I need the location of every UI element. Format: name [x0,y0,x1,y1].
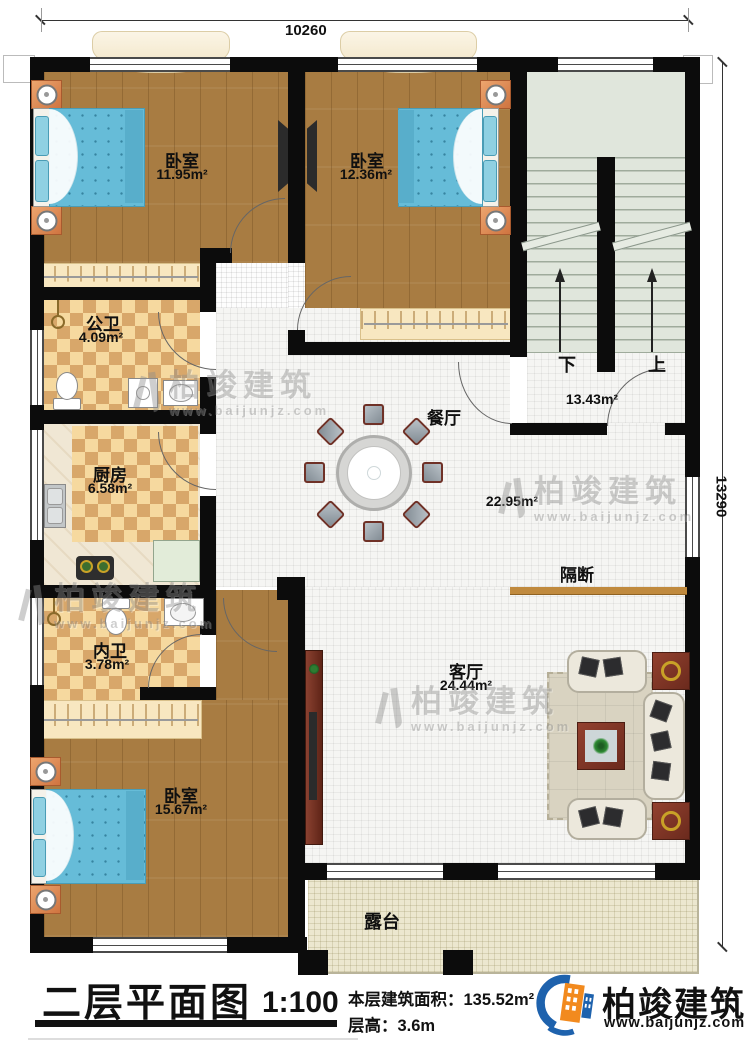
room-area: 11.95m² [156,166,207,182]
right-dimension-label: 13290 [712,476,729,518]
floor-area-label: 本层建筑面积： [348,991,464,1009]
wall-segment [305,863,327,880]
wall-segment [30,937,93,953]
partition-bar [510,587,687,595]
stair-arrow-head [555,268,565,282]
sliding-door [498,863,655,880]
pillow [483,160,497,202]
floor-area-info: 本层建筑面积：135.52m² [348,986,534,1010]
wall-segment [510,57,527,357]
room-area: 24.44m² [440,677,492,693]
stair-arrow [559,282,561,352]
wall-segment [288,57,305,263]
plant [309,664,319,674]
company-url: www.baijunjz.com [604,1015,745,1031]
pillow [483,116,497,156]
nightstand [31,80,62,109]
window [93,937,227,953]
chair [422,462,443,483]
stair-arrow-head [647,268,657,282]
wall-segment [288,342,527,355]
room-area: 3.78m² [85,656,129,672]
gold-ring [661,811,681,831]
sofa-cushion [578,656,599,677]
window [30,430,44,540]
wardrobe [40,700,202,739]
floor-area-value: 135.52m² [464,991,535,1009]
pillow [35,160,49,202]
stove-burner [97,560,110,573]
tv-panel [309,712,317,800]
floor-drain [47,612,61,626]
wall-segment [655,863,700,880]
nightstand [30,757,61,786]
stair-treads [615,157,685,353]
lamp-symbol [485,210,506,231]
extension-line [41,8,42,32]
room-area: 4.09m² [79,329,123,345]
nightstand [30,885,61,914]
tv-panel [278,120,288,192]
window [30,330,44,405]
washing-machine-door [136,386,150,400]
wall-segment [227,937,307,953]
room-area: 12.36m² [340,166,392,182]
room-area: 15.67m² [155,801,207,817]
chair [363,521,384,542]
lamp-symbol [485,84,506,105]
stove-burner [80,560,93,573]
sink-bowl [47,488,63,505]
tv-panel [307,120,317,192]
wall-segment [443,863,498,880]
table-center [367,466,381,480]
window [30,598,44,685]
stairs-down-label: 下 [558,351,576,377]
stair-mid-wall [597,157,615,372]
wall-segment [200,687,216,700]
side-table [652,652,690,690]
plant [593,738,609,754]
wall-segment [665,423,685,435]
window [338,57,477,72]
nightstand [480,206,511,235]
room-area: 6.58m² [88,480,132,496]
pillow [35,116,49,156]
chair [363,404,384,425]
window [685,477,700,557]
terrace-label: 露台 [364,908,400,934]
sink-basin [169,384,193,402]
wall-segment [200,377,216,434]
top-dimension-label: 10260 [285,22,327,39]
drain-hose [53,598,55,613]
lamp-symbol [35,889,56,910]
sink-basin [170,603,196,622]
floor-height-label: 层高： [348,1017,398,1035]
extension-line [688,8,689,32]
bed-fold [398,110,414,203]
window [327,863,443,880]
lamp-symbol [35,761,56,782]
chair [304,462,325,483]
wall-segment [200,248,216,312]
sofa-cushion [650,730,671,751]
nightstand [31,206,62,235]
wall-segment [510,423,607,435]
floor-plan-page: 10260 13290 [0,0,750,1046]
stairs-area: 13.43m² [566,391,618,407]
stair-arrow [651,282,653,352]
wall-segment [30,287,216,300]
title-underline [35,1020,337,1027]
stair-treads [527,157,597,353]
partition-label: 隔断 [560,561,594,586]
sofa-cushion [603,807,624,828]
stairs-up-label: 上 [648,351,666,377]
top-dimension-line [40,20,690,21]
wall-segment [685,57,700,477]
floor-height-info: 层高：3.6m [348,1012,435,1036]
wardrobe [360,308,512,340]
sink-bowl [47,507,63,524]
terrace-pillar [443,950,473,975]
gold-ring [661,661,681,681]
wall-segment [30,410,216,424]
wall-segment [288,590,305,937]
room-area: 22.95m² [486,493,538,509]
terrace-pillar [298,950,328,975]
pillow [33,797,46,835]
company-logo-icon [534,972,600,1036]
bed-fold [125,110,143,203]
wall-segment [30,585,216,598]
bed-fold [126,791,144,880]
toilet-bowl [56,372,78,400]
window [558,57,653,72]
lamp-symbol [36,84,57,105]
window [90,57,230,72]
wall-segment [230,57,338,72]
floor-height-value: 3.6m [398,1017,436,1035]
plan-scale: 1:100 [262,986,339,1020]
lamp-symbol [36,210,57,231]
sofa-cushion [603,657,624,678]
divider-line [28,1038,358,1040]
side-table [652,802,690,840]
drain-hose [57,300,59,316]
pillow [33,839,46,877]
toilet-bowl [105,608,127,635]
room-label: 餐厅 [427,404,461,429]
fridge [153,540,200,582]
nightstand [480,80,511,109]
sofa-cushion [651,761,671,781]
floor-drain [51,315,65,329]
